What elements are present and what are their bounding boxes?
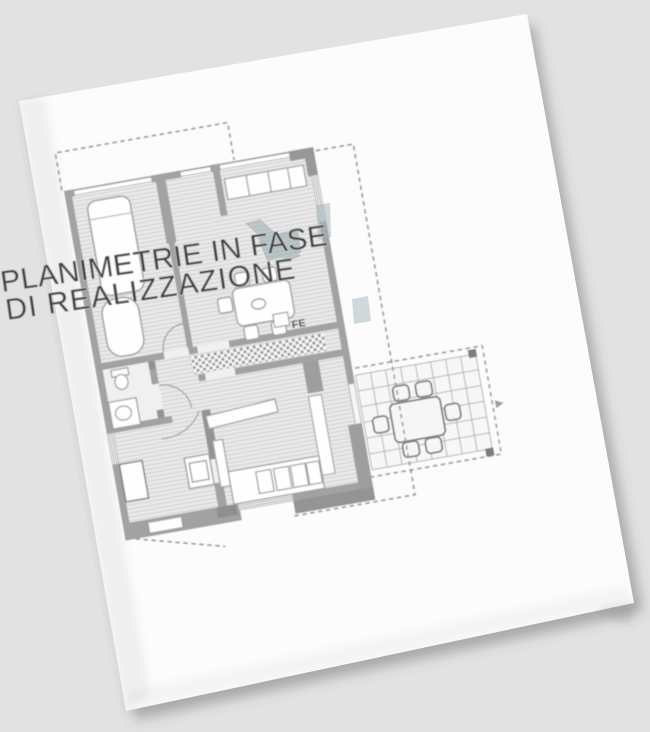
svg-text:FE: FE — [291, 317, 307, 331]
